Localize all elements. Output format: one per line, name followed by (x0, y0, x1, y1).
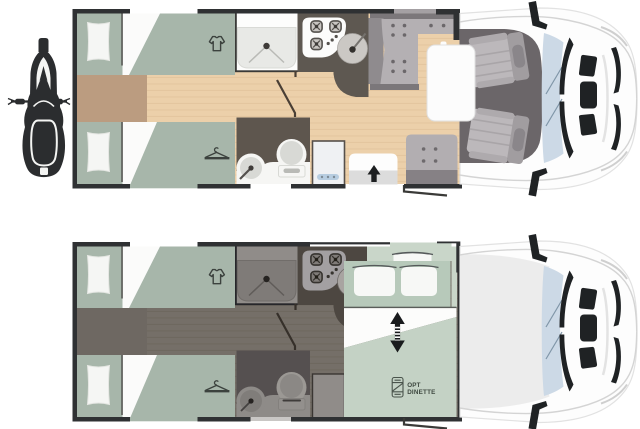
svg-text:DINETTE: DINETTE (407, 389, 435, 396)
svg-text:OPT: OPT (407, 382, 421, 389)
